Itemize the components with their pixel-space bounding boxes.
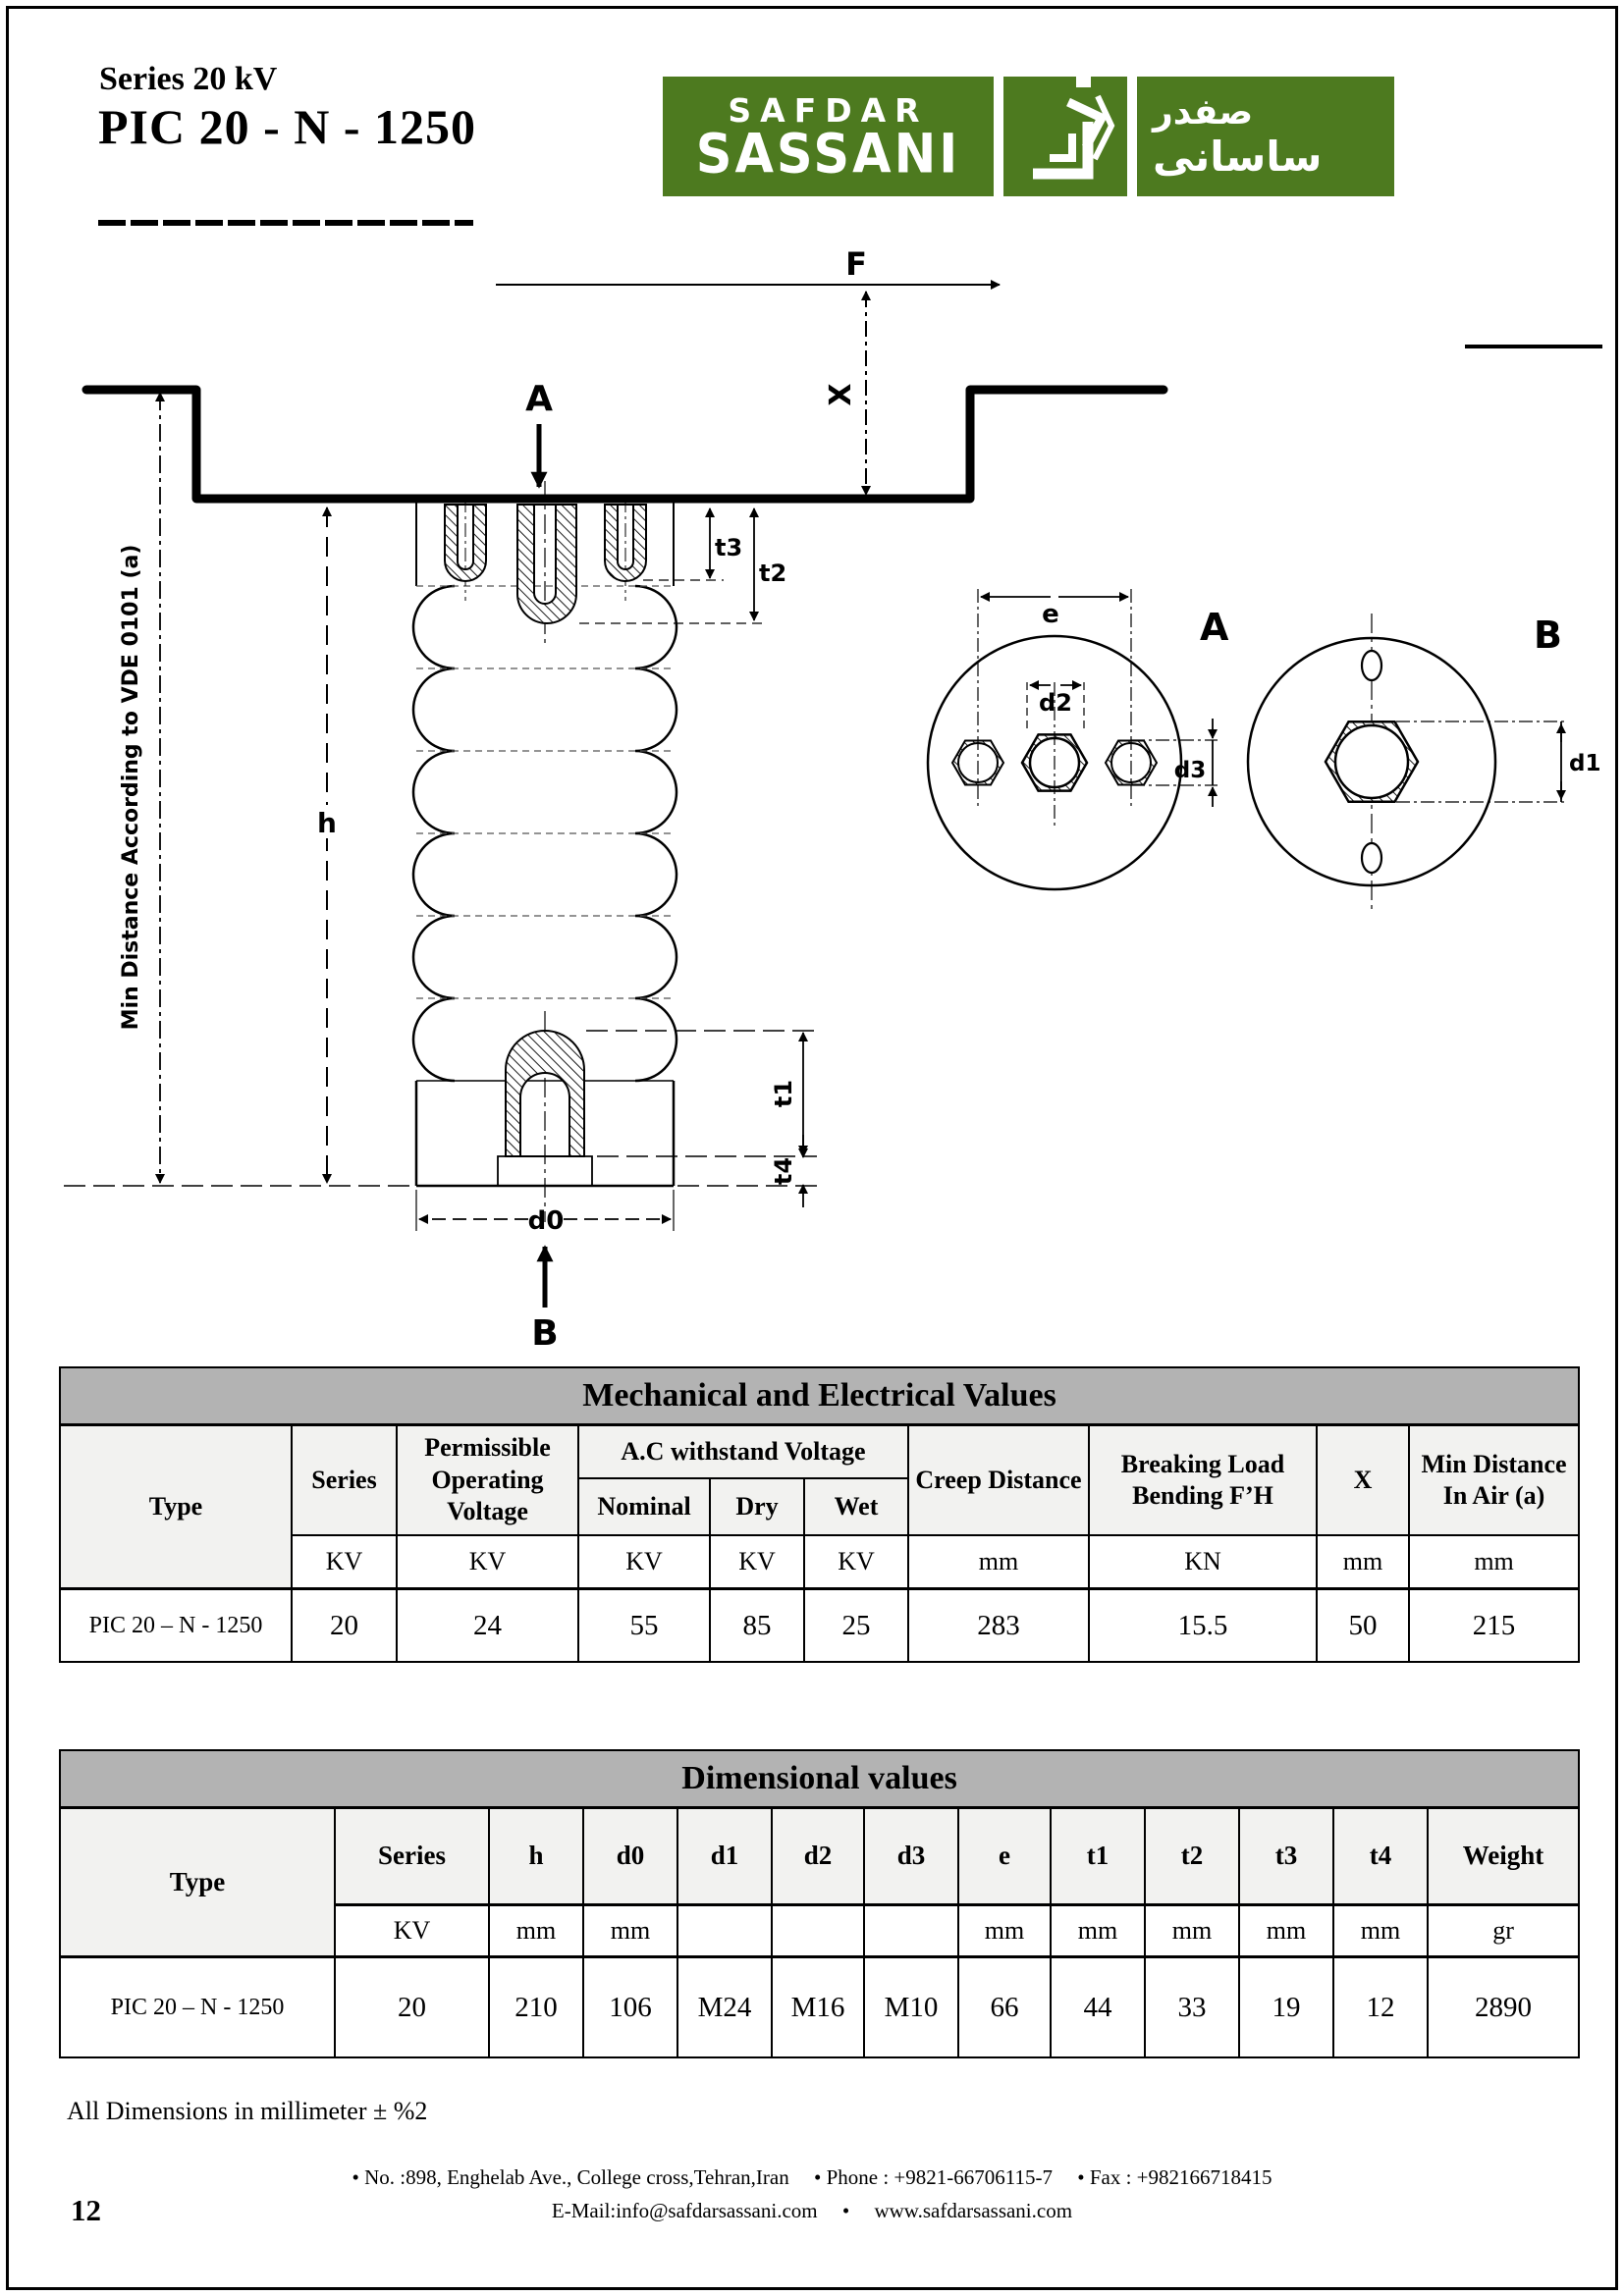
logo-arabic: صفدر ساسانی: [1137, 77, 1394, 196]
mech-col-series: Series: [292, 1425, 397, 1536]
mech-value-min-air: 215: [1409, 1589, 1579, 1663]
logo-arabic-top: صفدر: [1153, 92, 1253, 133]
dim-unit-d0: mm: [583, 1905, 677, 1957]
dim-unit-d2: [772, 1905, 864, 1957]
mech-unit-nominal: KV: [578, 1535, 710, 1589]
mech-unit-series: KV: [292, 1535, 397, 1589]
mech-col-ac-withstand: A.C withstand Voltage: [578, 1425, 908, 1479]
section-label-b: B: [531, 1313, 558, 1354]
dim-vde: Min Distance According to VDE 0101 (a): [119, 393, 160, 1183]
dim-unit-t1: mm: [1051, 1905, 1145, 1957]
dim-t1-t4: t1 t4: [64, 1031, 817, 1207]
datasheet-page: Series 20 kV PIC 20 - N - 1250 SAFDAR SA…: [0, 0, 1624, 2296]
footer-web-line: E-Mail:info@safdarsassani.com • www.safd…: [0, 2199, 1624, 2223]
mech-unit-breaking: KN: [1089, 1535, 1317, 1589]
footer-fax: • Fax : +982166718415: [1077, 2165, 1272, 2189]
mech-unit-creep: mm: [908, 1535, 1089, 1589]
logo-arabic-bottom: ساسانی: [1153, 133, 1322, 181]
dim-value-t3: 19: [1239, 1957, 1333, 2058]
dim-label-t2: t2: [759, 560, 786, 587]
mech-value-breaking: 15.5: [1089, 1589, 1317, 1663]
insulator-body: [413, 481, 677, 1222]
dim-value-type: PIC 20 – N - 1250: [60, 1957, 335, 2058]
mech-col-wet: Wet: [804, 1478, 908, 1535]
mech-col-dry: Dry: [710, 1478, 804, 1535]
dim-col-e: e: [958, 1808, 1051, 1905]
dim-f: F: [496, 245, 1000, 285]
logo-name-bottom: SASSANI: [696, 127, 961, 181]
dim-col-d3: d3: [864, 1808, 958, 1905]
dim-value-d2: M16: [772, 1957, 864, 2058]
dim-value-t2: 33: [1145, 1957, 1239, 2058]
dim-value-t1: 44: [1051, 1957, 1145, 2058]
dim-unit-series: KV: [335, 1905, 489, 1957]
dim-unit-d3: [864, 1905, 958, 1957]
section-label-a: A: [525, 379, 553, 419]
mech-col-nominal: Nominal: [578, 1478, 710, 1535]
pointer-a: A: [525, 379, 553, 487]
logo-name-top: SAFDAR: [728, 94, 928, 127]
dim-x: X: [824, 292, 866, 495]
dim-label-x: X: [824, 383, 858, 405]
footer-address: • No. :898, Enghelab Ave., College cross…: [352, 2165, 789, 2189]
dim-label-d1: d1: [1569, 751, 1600, 776]
dim-unit-e: mm: [958, 1905, 1051, 1957]
dim-value-e: 66: [958, 1957, 1051, 2058]
dim-unit-weight: gr: [1428, 1905, 1579, 1957]
mech-value-dry: 85: [710, 1589, 804, 1663]
dim-label-h: h: [317, 807, 337, 839]
dim-col-h: h: [489, 1808, 583, 1905]
footer-email: E-Mail:info@safdarsassani.com: [552, 2199, 818, 2222]
mech-value-type: PIC 20 – N - 1250: [60, 1589, 292, 1663]
title-underline: [98, 220, 473, 226]
threaded-inserts: [445, 505, 646, 1156]
dim-col-t4: t4: [1333, 1808, 1428, 1905]
dim-h: h: [312, 507, 342, 1183]
dim-label-t4: t4: [770, 1157, 797, 1185]
mech-col-operating-voltage: Permissible Operating Voltage: [397, 1425, 578, 1536]
dim-unit-t4: mm: [1333, 1905, 1428, 1957]
dim-label-f: F: [845, 245, 867, 283]
dim-col-type: Type: [60, 1808, 335, 1957]
logo-monogram-icon: [1003, 77, 1127, 196]
dim-col-t3: t3: [1239, 1808, 1333, 1905]
dim-label-d2: d2: [1039, 689, 1072, 717]
footer-website: www.safdarsassani.com: [874, 2199, 1072, 2222]
mech-unit-dry: KV: [710, 1535, 804, 1589]
footer-bullet: •: [842, 2199, 849, 2222]
mech-col-min-air: Min Distance In Air (a): [1409, 1425, 1579, 1536]
mech-value-wet: 25: [804, 1589, 908, 1663]
mech-value-creep: 283: [908, 1589, 1089, 1663]
mech-unit-x: mm: [1317, 1535, 1409, 1589]
dim-unit-h: mm: [489, 1905, 583, 1957]
dimensions-note: All Dimensions in millimeter ± %2: [67, 2097, 427, 2126]
mounting-plate: [86, 390, 1164, 499]
shed-junction-lines: [416, 586, 674, 998]
dim-table-title: Dimensional values: [60, 1750, 1579, 1808]
dim-col-d0: d0: [583, 1808, 677, 1905]
dim-col-d2: d2: [772, 1808, 864, 1905]
view-b-label: B: [1534, 614, 1562, 657]
dim-unit-t3: mm: [1239, 1905, 1333, 1957]
page-number: 12: [71, 2193, 101, 2228]
mech-unit-pov: KV: [397, 1535, 578, 1589]
view-a: e d2 d3 A: [928, 589, 1229, 889]
footer-phone: • Phone : +9821-66706115-7: [814, 2165, 1053, 2189]
series-title: Series 20 kV: [99, 61, 277, 98]
mech-col-breaking: Breaking Load Bending F’H: [1089, 1425, 1317, 1536]
technical-drawing: F X A: [0, 236, 1624, 1355]
mech-col-creep: Creep Distance: [908, 1425, 1089, 1536]
dim-label-d3: d3: [1174, 758, 1206, 783]
dim-unit-d1: [677, 1905, 772, 1957]
dim-col-t1: t1: [1051, 1808, 1145, 1905]
dim-label-t1: t1: [770, 1080, 797, 1107]
company-logo: SAFDAR SASSANI صفدر ساسانی: [663, 77, 1394, 196]
mech-unit-wet: KV: [804, 1535, 908, 1589]
vde-note: Min Distance According to VDE 0101 (a): [119, 545, 143, 1031]
dim-value-weight: 2890: [1428, 1957, 1579, 2058]
dim-col-t2: t2: [1145, 1808, 1239, 1905]
mech-value-series: 20: [292, 1589, 397, 1663]
mechanical-values-table: Mechanical and Electrical Values Type Se…: [59, 1366, 1580, 1663]
logo-monogram: [1003, 77, 1127, 196]
mech-unit-min-air: mm: [1409, 1535, 1579, 1589]
pointer-b: B: [531, 1247, 558, 1354]
dim-value-d3: M10: [864, 1957, 958, 2058]
dim-label-d0: d0: [528, 1206, 565, 1236]
dim-label-e: e: [1042, 600, 1059, 629]
dim-value-series: 20: [335, 1957, 489, 2058]
dim-col-weight: Weight: [1428, 1808, 1579, 1905]
footer-contact-line: • No. :898, Enghelab Ave., College cross…: [0, 2165, 1624, 2190]
mech-value-x: 50: [1317, 1589, 1409, 1663]
dimensional-values-table: Dimensional values Type Series h d0 d1 d…: [59, 1749, 1580, 2058]
dim-value-d1: M24: [677, 1957, 772, 2058]
dim-value-d0: 106: [583, 1957, 677, 2058]
mech-col-type: Type: [60, 1425, 292, 1589]
dim-unit-t2: mm: [1145, 1905, 1239, 1957]
dim-col-series: Series: [335, 1808, 489, 1905]
view-a-label: A: [1200, 606, 1229, 649]
product-title: PIC 20 - N - 1250: [98, 98, 476, 155]
logo-wordmark: SAFDAR SASSANI: [663, 77, 994, 196]
top-insert-center: [517, 505, 576, 623]
dim-value-h: 210: [489, 1957, 583, 2058]
dim-value-t4: 12: [1333, 1957, 1428, 2058]
mech-col-x: X: [1317, 1425, 1409, 1536]
mech-table-title: Mechanical and Electrical Values: [60, 1367, 1579, 1425]
dim-label-t3: t3: [715, 534, 742, 561]
dim-col-d1: d1: [677, 1808, 772, 1905]
mech-value-nominal: 55: [578, 1589, 710, 1663]
view-b: d1 B: [1248, 614, 1600, 911]
mech-value-pov: 24: [397, 1589, 578, 1663]
